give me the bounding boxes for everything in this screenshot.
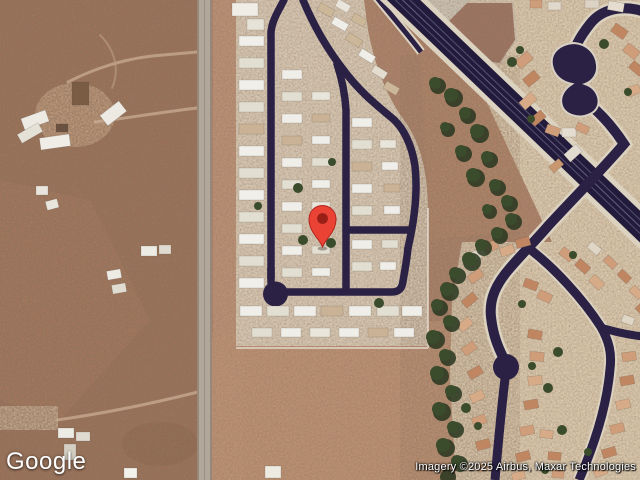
google-logo[interactable]: Google [6,448,86,476]
two-lane-road [197,0,212,480]
imagery-attribution: Imagery ©2025 Airbus, Maxar Technologies [415,461,636,473]
pin-inner-dot [317,213,328,224]
map-viewport: Google Imagery ©2025 Airbus, Maxar Techn… [0,0,640,480]
satellite-map-canvas[interactable] [0,0,640,480]
residential-culdesac [493,354,519,380]
park-culdesac [263,282,288,307]
